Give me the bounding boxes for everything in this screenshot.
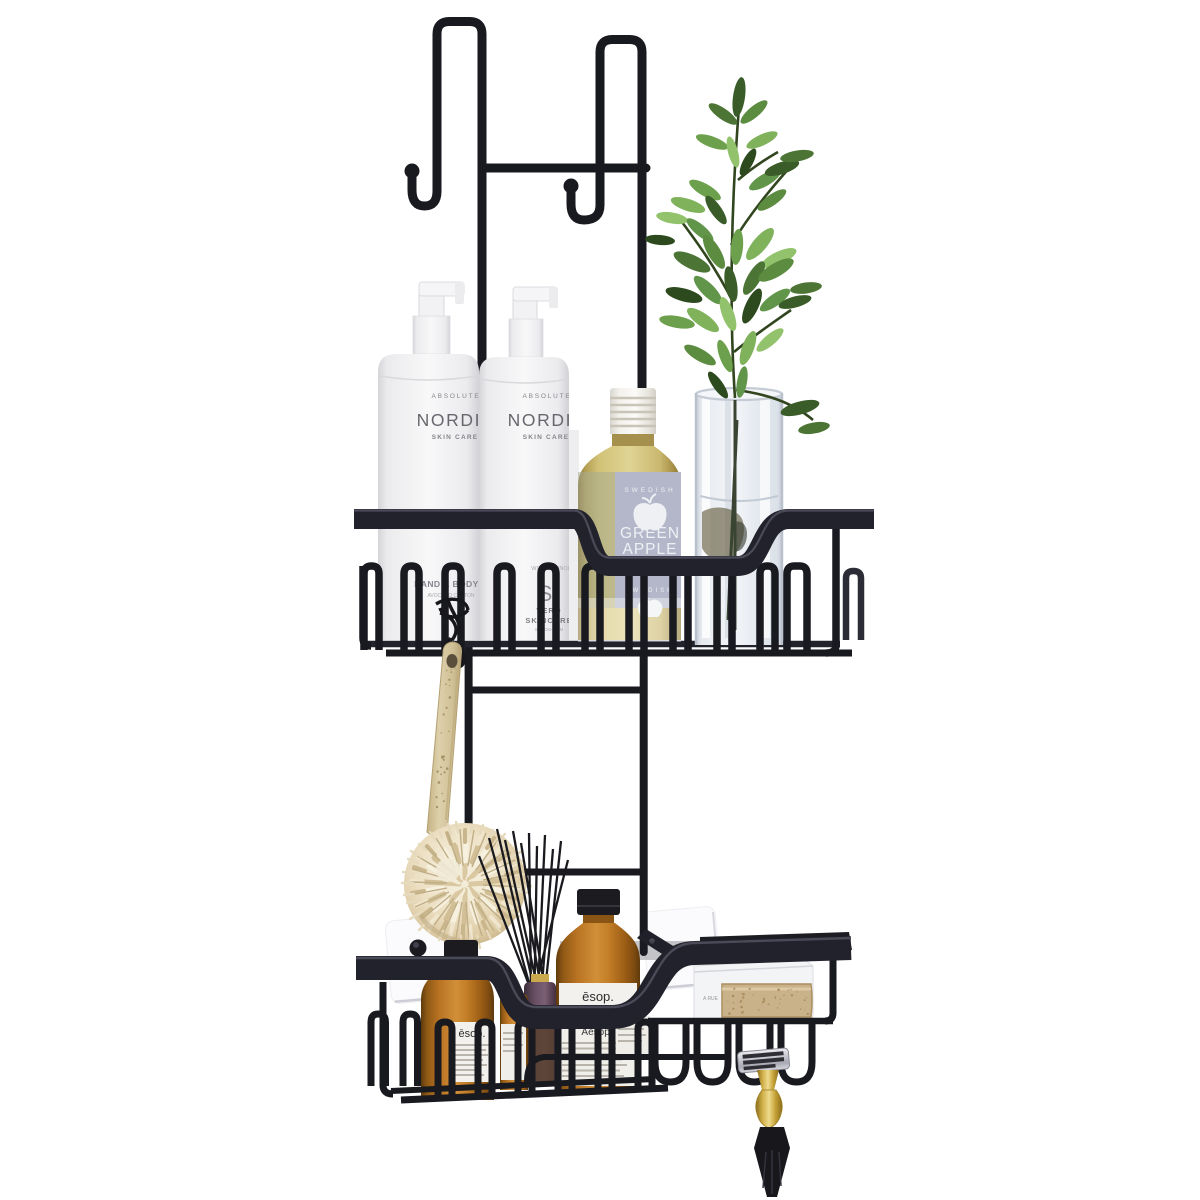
svg-text:APPLE: APPLE [623,541,678,558]
svg-text:SWEDISH: SWEDISH [625,588,674,594]
svg-text:SKIN CARE: SKIN CARE [523,434,570,441]
svg-text:A RUE: A RUE [703,996,719,1002]
svg-text:HAND & BODY W: HAND & BODY W [414,579,490,589]
svg-text:SKIN CARE: SKIN CARE [432,434,479,441]
svg-text:GREEN: GREEN [620,525,680,542]
svg-text:SWEDISH: SWEDISH [624,487,675,494]
svg-text:SKINCARE: SKINCARE [525,616,572,625]
svg-text:ABSOLUTE: ABSOLUTE [522,393,571,400]
svg-text:ABSOLUTE: ABSOLUTE [431,393,480,400]
svg-text:ēsop.: ēsop. [582,989,614,1004]
